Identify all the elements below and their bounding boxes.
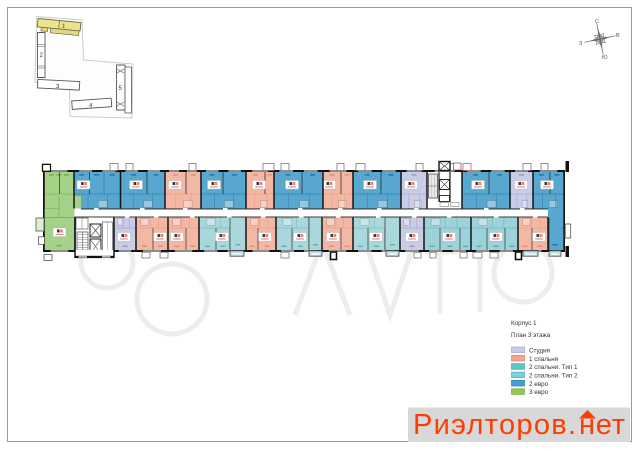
svg-text:2 евро: 2 евро xyxy=(529,381,549,388)
svg-text:Студия: Студия xyxy=(529,347,550,354)
svg-text:2 спальни. Тип 2: 2 спальни. Тип 2 xyxy=(529,373,578,380)
svg-text:Риэлторов.: Риэлторов. xyxy=(413,409,576,441)
svg-text:С: С xyxy=(595,19,599,25)
svg-text:3 евро: 3 евро xyxy=(529,389,549,396)
svg-text:План 3 этажа: План 3 этажа xyxy=(511,332,551,339)
svg-text:1 спальня: 1 спальня xyxy=(529,356,558,363)
svg-text:В: В xyxy=(616,33,620,39)
svg-text:Корпус 1: Корпус 1 xyxy=(511,320,537,327)
svg-text:2 спальни. Тип 1: 2 спальни. Тип 1 xyxy=(529,364,578,371)
svg-text:Ю: Ю xyxy=(602,55,608,61)
